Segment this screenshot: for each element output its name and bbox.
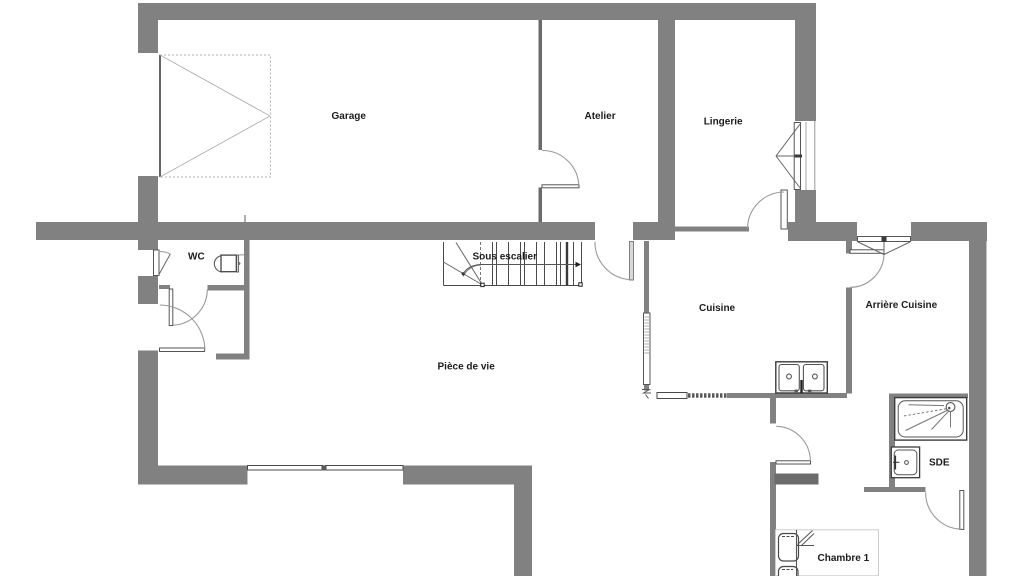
svg-text:SDE: SDE (929, 458, 950, 469)
svg-text:Garage: Garage (332, 111, 367, 122)
svg-text:WC: WC (188, 252, 205, 263)
svg-text:Arrière Cuisine: Arrière Cuisine (866, 300, 938, 311)
svg-text:Lingerie: Lingerie (704, 117, 743, 128)
svg-text:Chambre 1: Chambre 1 (818, 553, 870, 564)
svg-text:Cuisine: Cuisine (699, 303, 736, 314)
svg-text:Sous escalier: Sous escalier (473, 252, 538, 263)
svg-text:Atelier: Atelier (585, 111, 616, 122)
svg-text:Pièce de vie: Pièce de vie (438, 362, 496, 373)
